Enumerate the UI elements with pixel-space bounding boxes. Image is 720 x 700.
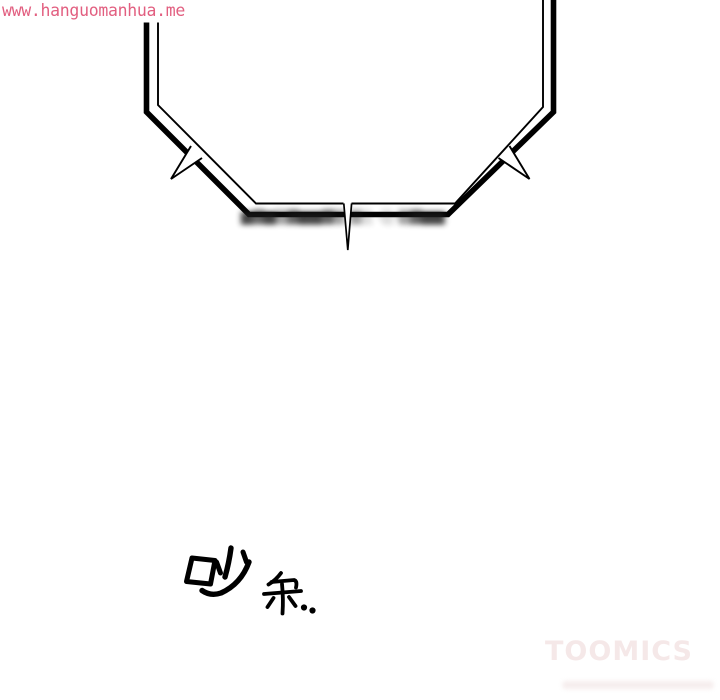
sfx-stroke [225, 548, 231, 577]
toomics-watermark: TOOMICS [545, 636, 693, 667]
sfx-stroke [217, 562, 221, 573]
sfx-stroke [268, 598, 274, 607]
sfx-stroke [243, 552, 247, 562]
sfx-large-char-strokes [187, 558, 216, 584]
sfx-dot [309, 607, 315, 613]
sfx-stroke [282, 584, 283, 614]
sfx-drawing [0, 0, 720, 700]
sfx-dot [301, 604, 307, 610]
comic-panel: www.hanguomanhua.me ▇▓▇▒▓▇▇▓▒ ▒░ ·░·▒▓▇▇ [0, 0, 720, 700]
sfx-stroke [289, 597, 296, 606]
toomics-tagline-smudge [562, 681, 714, 689]
